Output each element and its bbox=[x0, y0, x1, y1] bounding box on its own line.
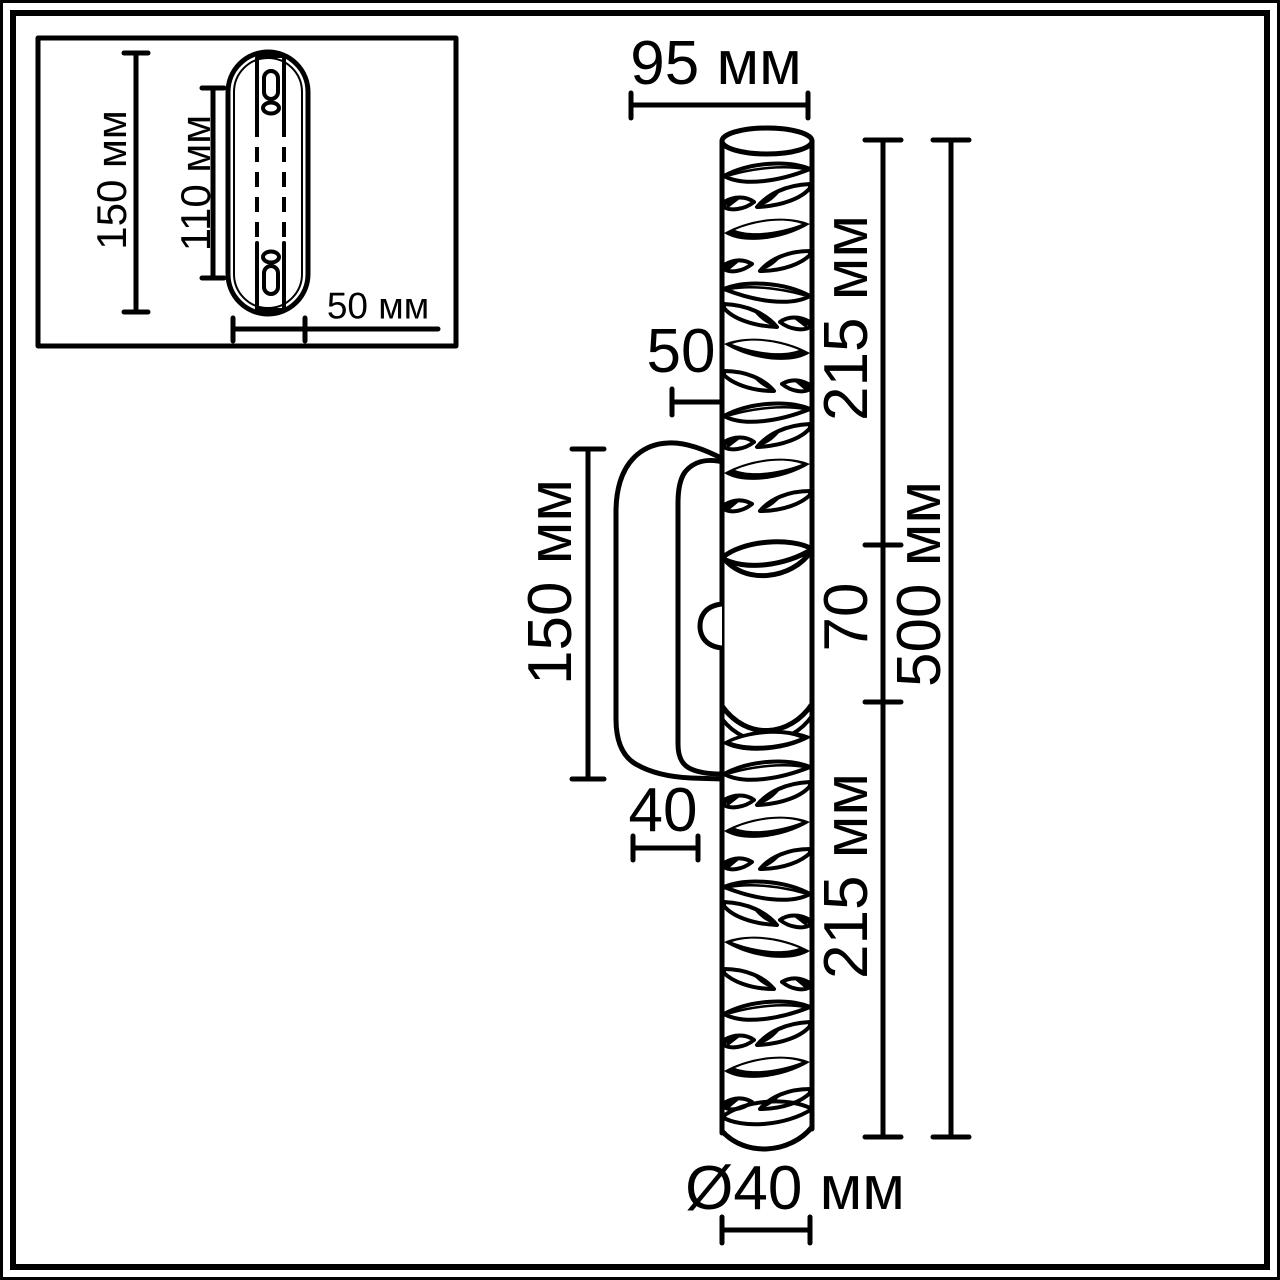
dim-label-upper-length: 215 мм bbox=[816, 215, 878, 421]
dim-label-tube-wall-gap: 50 bbox=[647, 321, 716, 383]
dim-label-bracket-depth: 40 bbox=[629, 780, 698, 842]
dim-label-plate-width: 50 мм bbox=[327, 288, 429, 325]
technical-drawing-page: 150 мм 110 мм 50 мм 95 мм 50 150 мм 40 2… bbox=[0, 0, 1280, 1280]
dim-label-plate-height: 150 мм bbox=[91, 110, 133, 250]
dim-label-top-width: 95 мм bbox=[630, 33, 801, 95]
tube-top-rim bbox=[722, 128, 812, 154]
dim-label-center-length: 70 bbox=[816, 583, 878, 652]
dim-label-tube-diameter: Ø40 мм bbox=[685, 1158, 905, 1220]
dim-label-hole-spacing: 110 мм bbox=[175, 115, 217, 251]
dim-label-lower-length: 215 мм bbox=[816, 773, 878, 979]
dim-label-total-length: 500 мм bbox=[889, 481, 951, 687]
lamp-tube bbox=[700, 128, 812, 1149]
tube-middle-knob bbox=[700, 604, 722, 648]
dim-label-bracket-height: 150 мм bbox=[520, 479, 582, 685]
mounting-plate bbox=[228, 52, 308, 314]
dim-tube-wall-gap bbox=[672, 389, 721, 415]
